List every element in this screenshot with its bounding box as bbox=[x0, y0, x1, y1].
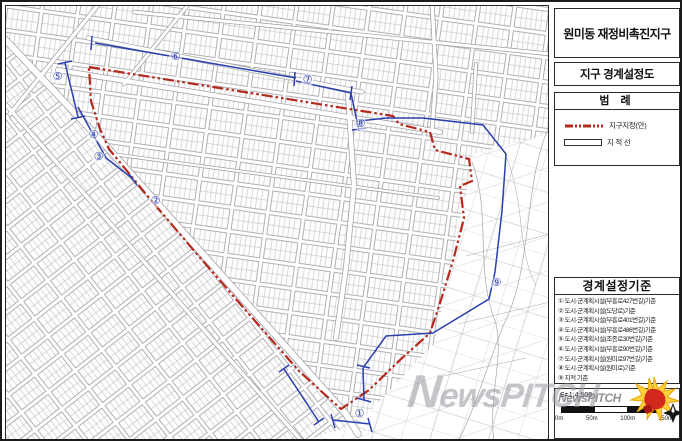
map-marker-1: ① bbox=[353, 408, 366, 421]
map-svg bbox=[6, 6, 549, 440]
scale-label: S=1:4,500 bbox=[560, 392, 592, 399]
map-subtitle: 지구 경계설정도 bbox=[580, 66, 654, 82]
cadastral-line-swatch bbox=[564, 139, 602, 146]
map-marker-7: ⑦ bbox=[301, 74, 314, 87]
scale-tick-50: 50m bbox=[586, 416, 598, 422]
scale-tick-0: 0m bbox=[555, 416, 563, 422]
legend-label-district: 지구지정(안) bbox=[609, 120, 646, 131]
subtitle-box: 지구 경계설정도 bbox=[554, 62, 680, 86]
legend-header: 범 례 bbox=[555, 93, 679, 110]
criteria-item-3: ③ 도시·군계획시설(부흥로401번길)기준 bbox=[558, 316, 677, 326]
legend-item-cadastral: 지 적 선 bbox=[564, 137, 630, 148]
map-marker-9: ⑨ bbox=[490, 277, 503, 290]
legend-box: 범 례 지구지정(안) 지 적 선 bbox=[554, 92, 680, 166]
map-marker-8: ⑧ bbox=[354, 118, 367, 131]
criteria-item-7: ⑦ 도시·군계획시설(원미로97번길)기준 bbox=[558, 355, 677, 365]
criteria-item-2: ② 도시·군계획시설(도당로)기준 bbox=[558, 307, 677, 317]
district-boundary-swatch bbox=[564, 122, 604, 130]
map-marker-3: ③ bbox=[92, 151, 105, 164]
criteria-box: 경계설정기준 ① 도시·군계획시설(부흥로427번길)기준 ② 도시·군계획시설… bbox=[554, 277, 680, 384]
criteria-item-4: ④ 도시·군계획시설(부흥로486번길)기준 bbox=[558, 326, 677, 336]
criteria-item-6: ⑥ 도시·군계획시설(부흥로90번길)기준 bbox=[558, 345, 677, 355]
title-box: 원미동 재정비촉진지구 bbox=[554, 8, 680, 58]
map-marker-6: ⑥ bbox=[169, 51, 182, 64]
criteria-item-8: ⑧ 도시·군계획시설(원미로)기준 bbox=[558, 364, 677, 374]
scale-box: S=1:4,500 0m 50m 100m 150m NewsPITCH bbox=[554, 388, 680, 439]
criteria-header: 경계설정기준 bbox=[555, 278, 679, 295]
legend-item-district: 지구지정(안) bbox=[564, 120, 646, 131]
compass-star-icon bbox=[663, 403, 682, 423]
map-area: ① ② ③ ④ ⑤ ⑥ ⑦ ⑧ ⑨ bbox=[5, 5, 549, 440]
criteria-item-5: ⑤ 도시·군계획시설(조종로30번길)기준 bbox=[558, 335, 677, 345]
legend-label-cadastral: 지 적 선 bbox=[607, 137, 630, 148]
criteria-list: ① 도시·군계획시설(부흥로427번길)기준 ② 도시·군계획시설(도당로)기준… bbox=[555, 295, 679, 383]
criteria-item-1: ① 도시·군계획시설(부흥로427번길)기준 bbox=[558, 297, 677, 307]
map-marker-2: ② bbox=[149, 195, 162, 208]
page-frame: ① ② ③ ④ ⑤ ⑥ ⑦ ⑧ ⑨ NewsPITCH 원미동 재정비촉진지구 … bbox=[0, 0, 682, 441]
map-marker-4: ④ bbox=[87, 129, 100, 142]
map-title: 원미동 재정비촉진지구 bbox=[563, 25, 670, 42]
map-marker-5: ⑤ bbox=[51, 71, 64, 84]
